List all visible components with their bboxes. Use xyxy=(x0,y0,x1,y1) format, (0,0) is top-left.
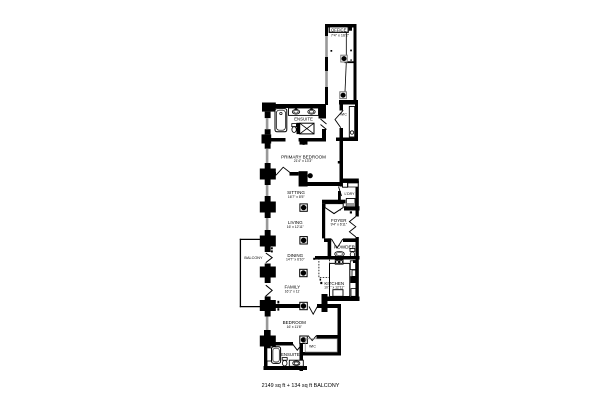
svg-text:10'1" x 12'11": 10'1" x 12'11" xyxy=(324,286,345,290)
svg-text:16'7" x 8'5": 16'7" x 8'5" xyxy=(288,195,306,199)
svg-text:14'7" x 6'10": 14'7" x 6'10" xyxy=(286,258,305,262)
svg-text:ENSUITE: ENSUITE xyxy=(294,116,313,121)
svg-text:WIC: WIC xyxy=(309,344,316,348)
svg-text:21'4" x 13'3": 21'4" x 13'3" xyxy=(294,159,313,163)
svg-text:16' x 11'6": 16' x 11'6" xyxy=(287,325,303,329)
svg-text:OFFICE: OFFICE xyxy=(331,27,347,32)
svg-text:9'4" x 6'11": 9'4" x 6'11" xyxy=(331,223,348,227)
svg-text:7'4" x 16'2": 7'4" x 16'2" xyxy=(331,33,350,37)
svg-text:BALCONY: BALCONY xyxy=(244,256,263,260)
svg-text:2149 sq ft + 134 sq ft BALCONY: 2149 sq ft + 134 sq ft BALCONY xyxy=(262,383,340,389)
svg-text:ENSUITE: ENSUITE xyxy=(281,352,300,357)
svg-text:L'DRY: L'DRY xyxy=(345,192,356,196)
svg-text:16' x 12'11": 16' x 12'11" xyxy=(287,225,305,229)
svg-text:16'1" x 11': 16'1" x 11' xyxy=(285,289,301,293)
